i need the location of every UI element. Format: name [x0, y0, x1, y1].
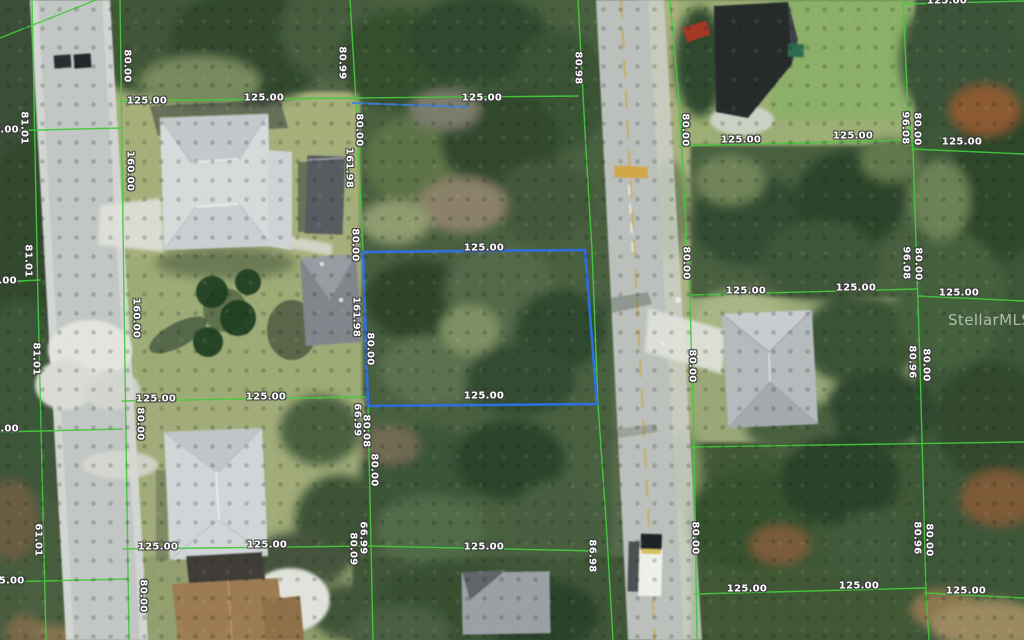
house-top-left [150, 100, 292, 250]
house-lower-left [156, 428, 268, 560]
shed [298, 155, 345, 234]
watermark: StellarMLS [948, 311, 1024, 329]
house-bottom-center [461, 570, 550, 635]
road-yellow-hatch [614, 165, 648, 178]
mls-aerial-photo: 125.00125.00125.00125.00125.00125.00125.… [0, 0, 1024, 640]
box-truck [627, 533, 663, 596]
car [74, 53, 92, 68]
pool [788, 44, 805, 58]
car [54, 54, 72, 68]
aerial-photo [0, 0, 1024, 640]
